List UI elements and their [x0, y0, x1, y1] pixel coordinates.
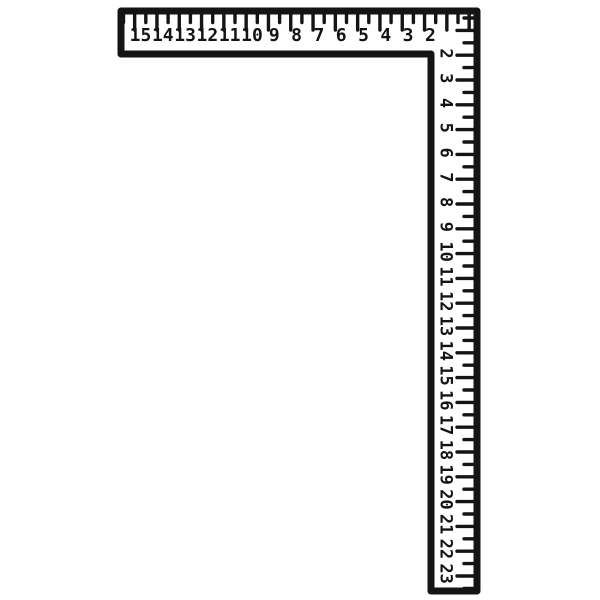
scale-number: 15: [130, 25, 152, 46]
scale-number: 15: [436, 365, 456, 385]
scale-number: 6: [436, 147, 456, 157]
scale-number: 12: [197, 25, 219, 46]
scale-number: 11: [219, 25, 241, 46]
scale-number: 11: [436, 266, 456, 286]
scale-number: 4: [436, 98, 456, 108]
scale-number: 8: [291, 25, 302, 46]
scale-number: 2: [425, 25, 436, 46]
scale-number: 10: [436, 241, 456, 261]
scale-number: 7: [313, 25, 324, 46]
scale-number: 13: [174, 25, 196, 46]
vertical-scale-ticks: [457, 18, 476, 588]
scale-number: 6: [336, 25, 347, 46]
scale-number: 13: [436, 316, 456, 336]
scale-number: 12: [436, 291, 456, 311]
scale-number: 10: [241, 25, 263, 46]
framing-square-illustration: 15141312111098765432 2345678910111213141…: [0, 0, 600, 600]
scale-number: 14: [436, 340, 456, 360]
scale-number: 5: [358, 25, 369, 46]
scale-number: 17: [436, 415, 456, 435]
framing-square-drawing: 15141312111098765432 2345678910111213141…: [0, 0, 600, 600]
scale-number: 19: [436, 464, 456, 484]
scale-number: 9: [436, 222, 456, 232]
scale-number: 18: [436, 440, 456, 460]
scale-number: 5: [436, 123, 456, 133]
scale-number: 8: [436, 197, 456, 207]
scale-number: 22: [436, 539, 456, 559]
vertical-scale-numbers: 234567891011121314151617181920212223: [436, 48, 456, 584]
scale-number: 3: [436, 73, 456, 83]
square-outline: [121, 11, 477, 591]
scale-number: 2: [436, 48, 456, 58]
scale-number: 7: [436, 172, 456, 182]
scale-number: 9: [269, 25, 280, 46]
scale-number: 3: [403, 25, 414, 46]
scale-number: 21: [436, 514, 456, 534]
scale-number: 23: [436, 563, 456, 583]
scale-number: 20: [436, 489, 456, 509]
scale-number: 16: [436, 390, 456, 410]
scale-number: 4: [380, 25, 391, 46]
scale-number: 14: [152, 25, 174, 46]
